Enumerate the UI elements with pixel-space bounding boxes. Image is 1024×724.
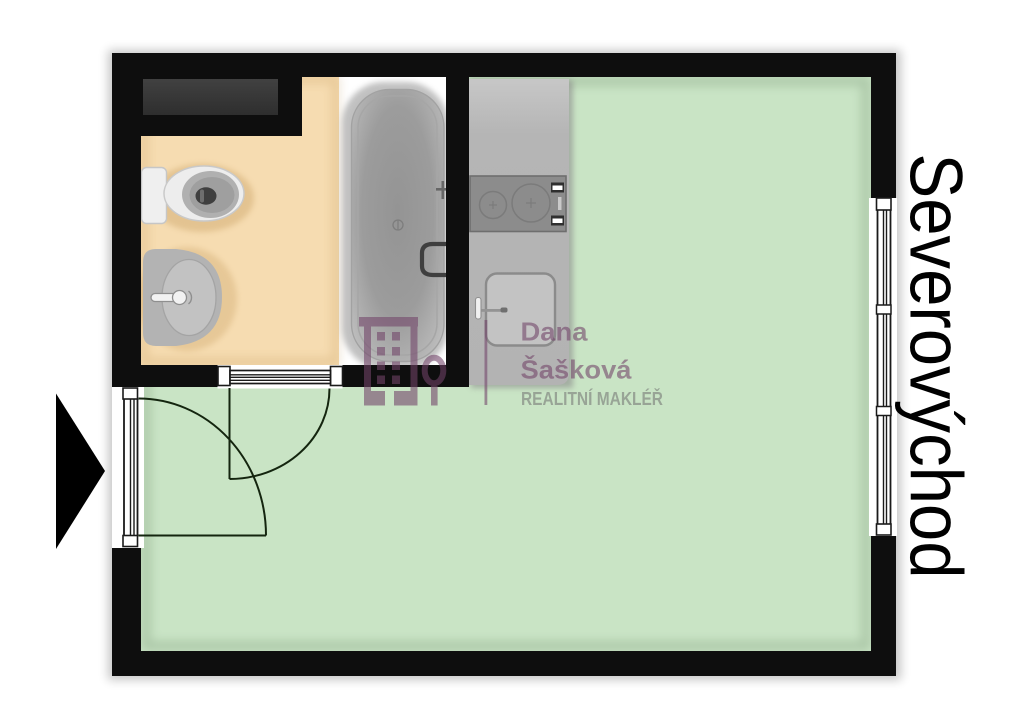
svg-text:Severovýchod: Severovýchod — [895, 154, 978, 579]
svg-text:Šašková: Šašková — [521, 355, 633, 385]
svg-text:Dana: Dana — [521, 317, 589, 347]
svg-text:REALITNÍ MAKLÉŘ: REALITNÍ MAKLÉŘ — [521, 388, 663, 409]
